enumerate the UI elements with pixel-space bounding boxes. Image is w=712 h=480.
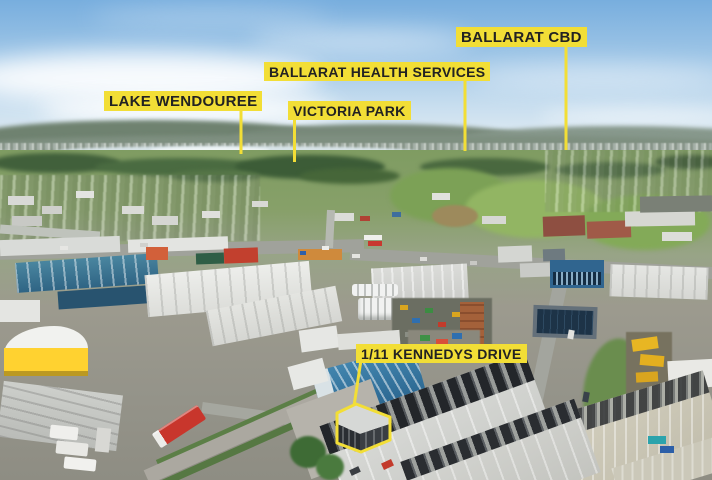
callout-line-property [354, 360, 361, 406]
callout-label-victoria-park: VICTORIA PARK [288, 101, 411, 120]
callout-label-ballarat-health-services: BALLARAT HEALTH SERVICES [264, 62, 490, 81]
callout-label-property-address: 1/11 KENNEDYS DRIVE [356, 344, 527, 363]
callout-label-ballarat-cbd: BALLARAT CBD [456, 27, 587, 47]
callout-label-lake-wendouree: LAKE WENDOUREE [104, 91, 262, 111]
aerial-photo: LAKE WENDOUREE VICTORIA PARK BALLARAT HE… [0, 0, 712, 480]
